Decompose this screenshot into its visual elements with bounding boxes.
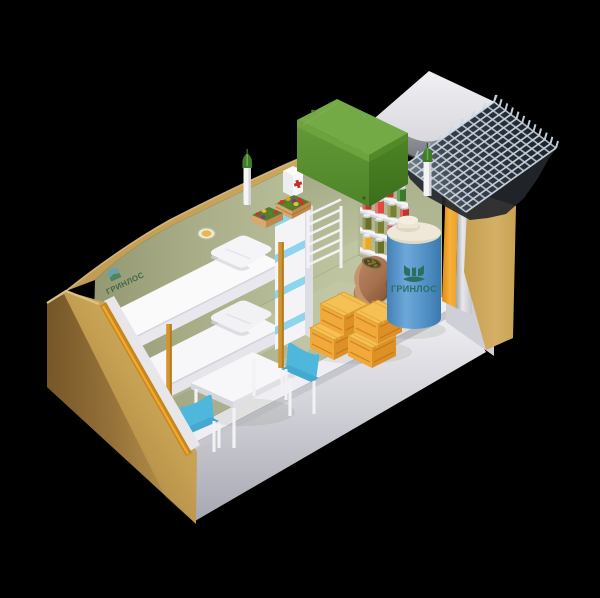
svg-text:ГРИНЛОС: ГРИНЛОС [391, 284, 437, 294]
